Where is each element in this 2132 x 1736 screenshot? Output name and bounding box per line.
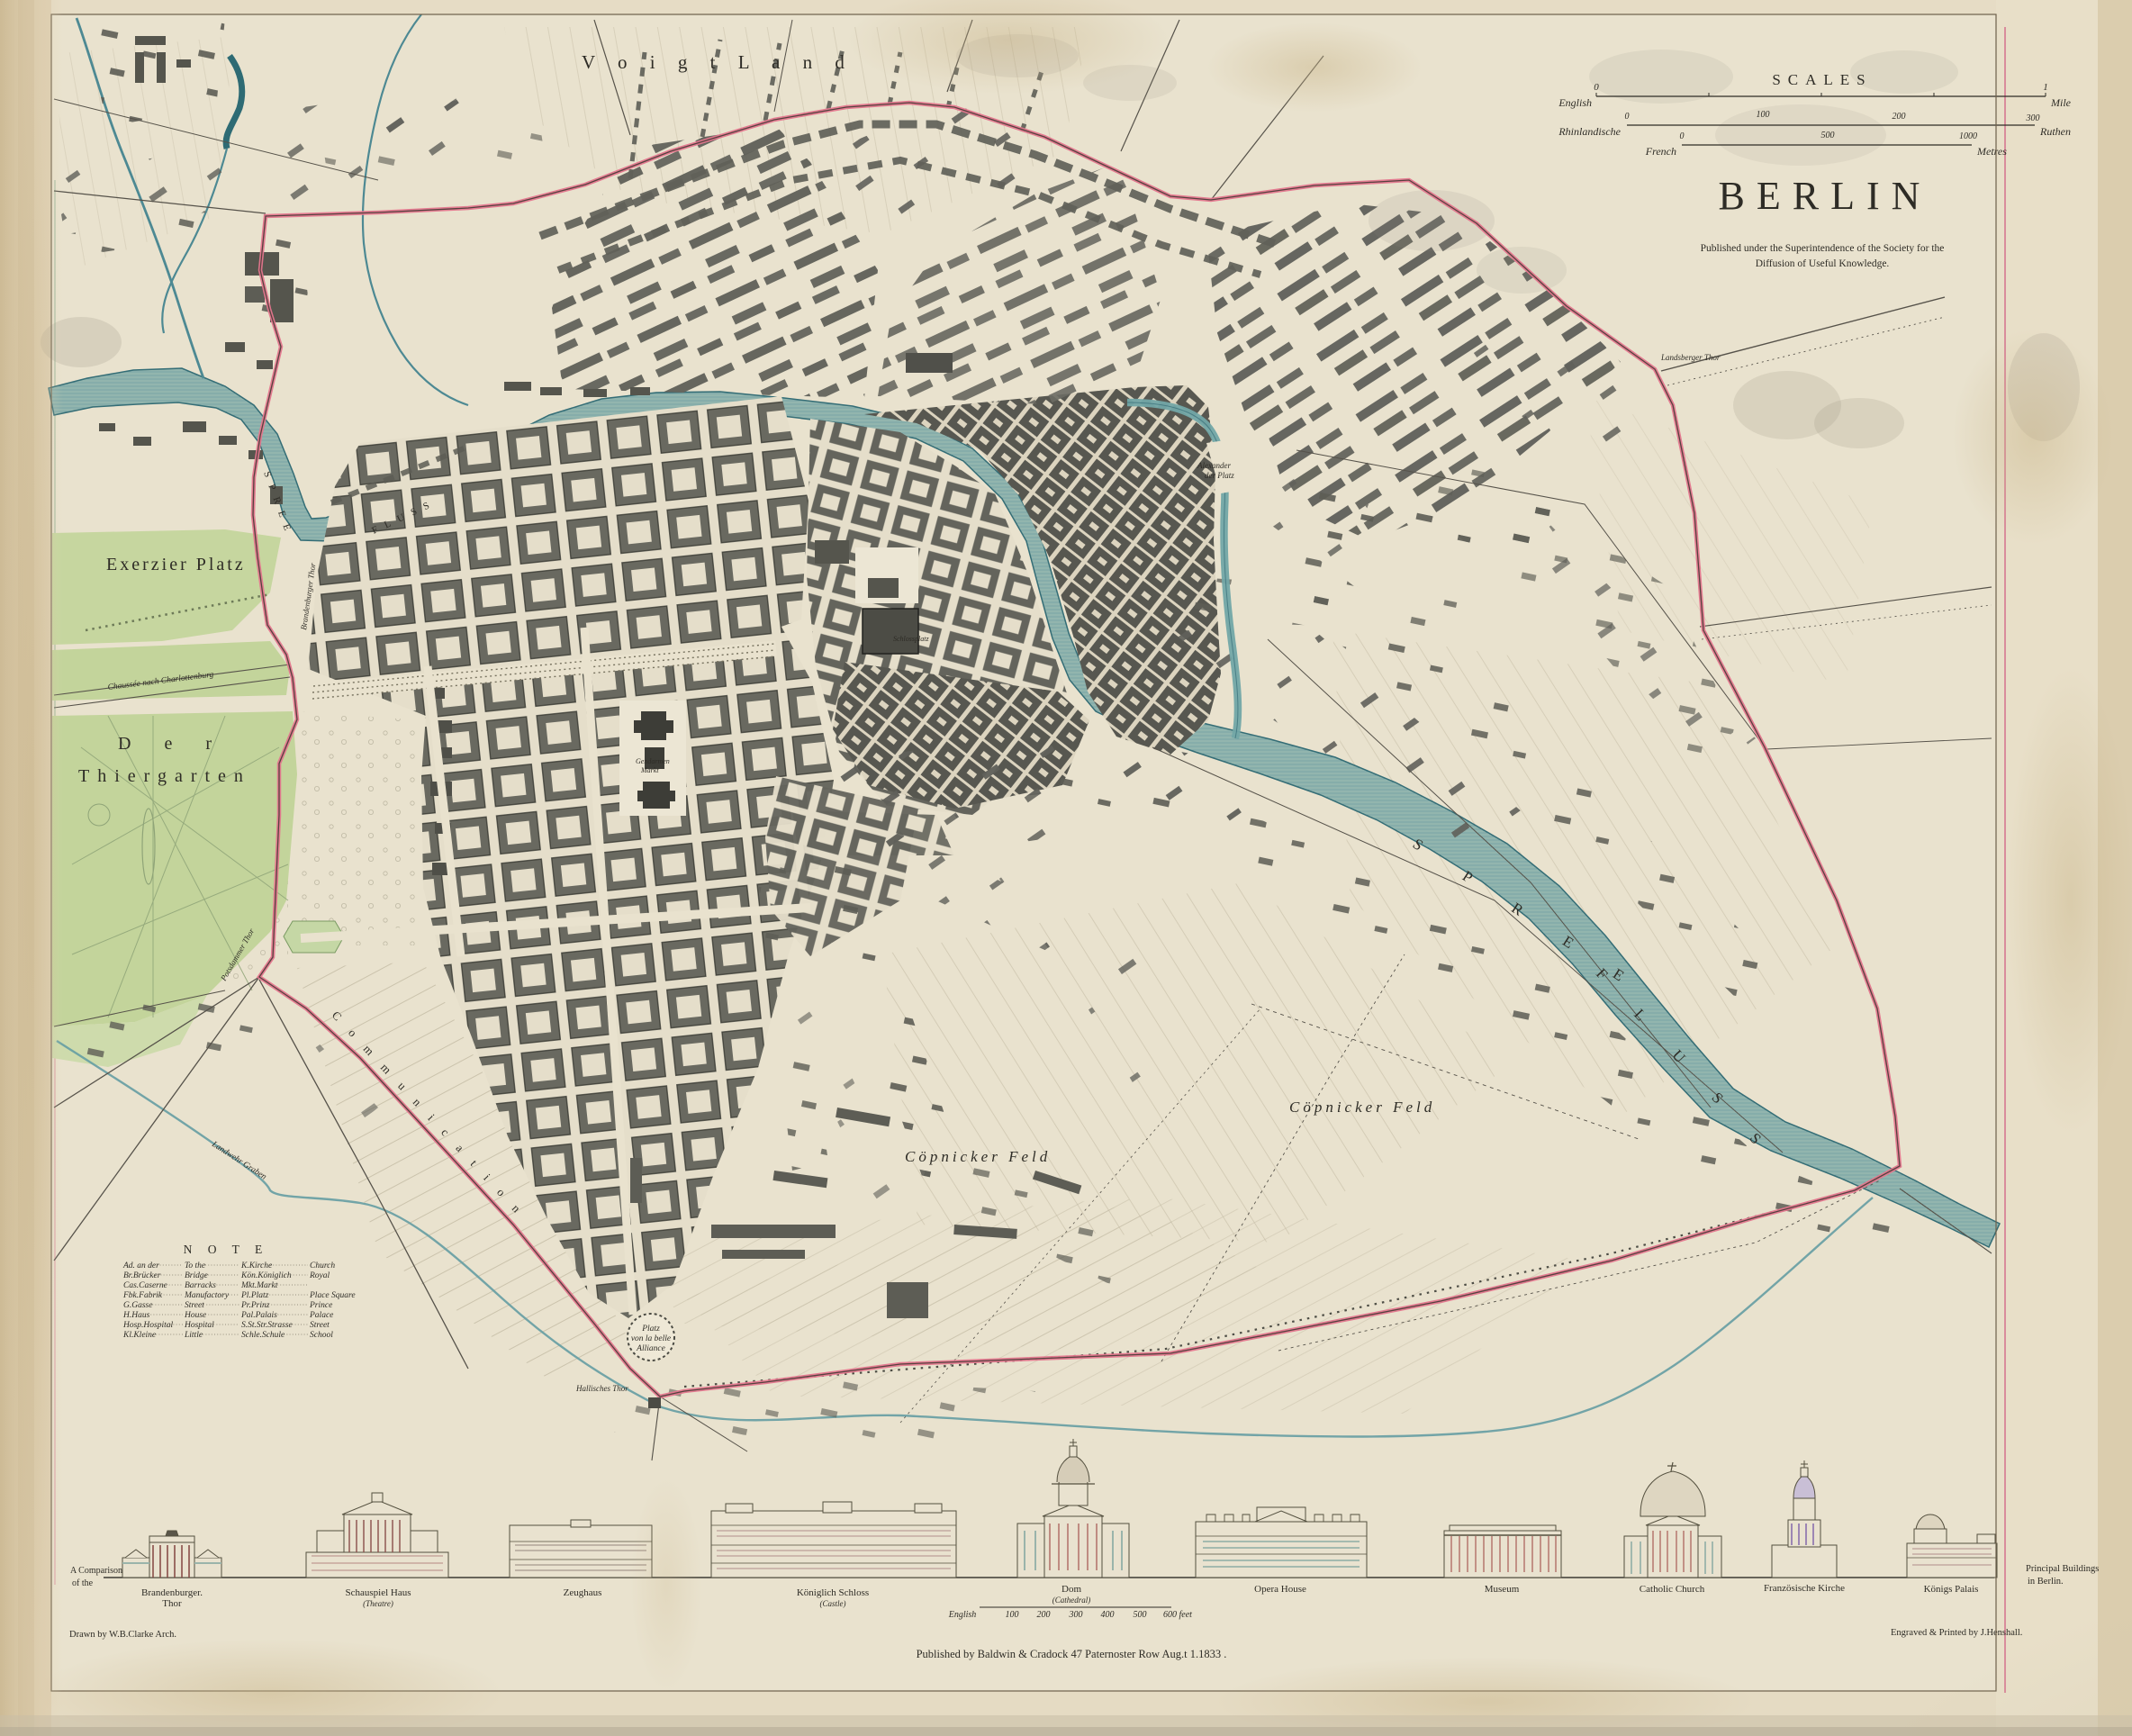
svg-text:SCALES: SCALES (1772, 71, 1872, 88)
svg-text:(Castle): (Castle) (820, 1599, 846, 1608)
svg-text:Prince: Prince (309, 1301, 332, 1310)
svg-text:Published by Baldwin & Cradock: Published by Baldwin & Cradock 47 Patern… (917, 1648, 1227, 1660)
svg-text:(Theatre): (Theatre) (363, 1599, 393, 1608)
svg-text:Mile: Mile (2050, 96, 2072, 109)
svg-text:D e r: D e r (118, 734, 226, 754)
svg-text:Catholic Church: Catholic Church (1640, 1584, 1705, 1595)
svg-text:House: House (184, 1311, 206, 1320)
svg-text:300: 300 (1069, 1610, 1083, 1620)
svg-text:Königlich Schloss: Königlich Schloss (797, 1587, 869, 1598)
svg-text:Bridge: Bridge (185, 1271, 208, 1280)
svg-text:0: 0 (1680, 131, 1685, 141)
svg-text:Pl.Platz: Pl.Platz (240, 1291, 269, 1300)
svg-text:300: 300 (2026, 113, 2040, 123)
svg-text:Br.Brücker: Br.Brücker (123, 1271, 161, 1280)
svg-text:V o i g t L a n d: V o i g t L a n d (582, 51, 854, 73)
svg-text:Hallisches Thor: Hallisches Thor (575, 1384, 628, 1393)
svg-text:Cöpnicker Feld: Cöpnicker Feld (905, 1148, 1051, 1165)
svg-text:Rhinlandische: Rhinlandische (1558, 125, 1621, 138)
svg-text:Church: Church (310, 1261, 335, 1270)
svg-text:H.Haus: H.Haus (122, 1311, 150, 1320)
svg-text:von la belle: von la belle (631, 1334, 671, 1343)
svg-text:English: English (948, 1610, 977, 1620)
svg-text:Schle.Schule: Schle.Schule (241, 1331, 285, 1340)
svg-text:Exerzier Platz: Exerzier Platz (106, 555, 246, 574)
svg-text:Dom: Dom (1061, 1584, 1081, 1595)
svg-text:Kön.Königlich: Kön.Königlich (240, 1271, 292, 1280)
svg-text:Barracks: Barracks (185, 1281, 216, 1290)
svg-text:Manufactory: Manufactory (184, 1290, 230, 1300)
svg-text:200: 200 (1893, 112, 1906, 122)
svg-text:Cöpnicker Feld: Cöpnicker Feld (1289, 1099, 1435, 1116)
svg-text:Thiergarten: Thiergarten (78, 766, 251, 786)
svg-text:Cas.Caserne: Cas.Caserne (123, 1281, 167, 1290)
svg-text:Zeughaus: Zeughaus (564, 1587, 602, 1598)
svg-text:Platz: Platz (641, 1325, 660, 1334)
svg-text:200: 200 (1037, 1610, 1051, 1620)
svg-text:600 feet: 600 feet (1163, 1610, 1192, 1620)
svg-text:Metres: Metres (1976, 145, 2007, 158)
svg-text:Diffusion of Useful Knowledge.: Diffusion of Useful Knowledge. (1756, 258, 1890, 269)
svg-text:Published under the Superinten: Published under the Superintendence of t… (1701, 243, 1945, 254)
svg-text:School: School (310, 1331, 333, 1340)
svg-text:G.Gasse: G.Gasse (123, 1301, 152, 1310)
svg-text:400: 400 (1101, 1610, 1115, 1620)
svg-text:0: 0 (1625, 112, 1630, 122)
svg-text:Place Square: Place Square (309, 1291, 356, 1300)
svg-text:N O T E: N O T E (184, 1243, 269, 1256)
svg-text:Markt: Markt (640, 766, 659, 774)
svg-text:500: 500 (1134, 1610, 1147, 1620)
svg-text:of the: of the (72, 1578, 94, 1588)
svg-text:1: 1 (2043, 82, 2048, 93)
svg-text:Hosp.Hospital: Hosp.Hospital (122, 1321, 174, 1330)
svg-text:Gendarmen: Gendarmen (636, 757, 670, 765)
svg-text:Thor: Thor (162, 1598, 182, 1609)
svg-text:Little: Little (184, 1331, 203, 1340)
svg-text:Palace: Palace (309, 1311, 333, 1320)
svg-text:Alexander: Alexander (1197, 461, 1231, 470)
svg-text:Fbk.Fabrik: Fbk.Fabrik (122, 1291, 163, 1300)
svg-text:500: 500 (1821, 131, 1835, 140)
svg-text:English: English (1558, 96, 1592, 109)
svg-text:Street: Street (185, 1301, 204, 1310)
svg-text:To the: To the (185, 1261, 205, 1270)
svg-text:A Comparison: A Comparison (70, 1566, 122, 1576)
svg-text:Mkt.Markt: Mkt.Markt (240, 1281, 278, 1290)
svg-text:(Cathedral): (Cathedral) (1052, 1596, 1091, 1605)
svg-text:Schauspiel Haus: Schauspiel Haus (345, 1587, 411, 1598)
svg-text:Street: Street (310, 1321, 330, 1330)
svg-text:Landsberger Thor: Landsberger Thor (1660, 353, 1721, 362)
svg-text:100: 100 (1757, 110, 1770, 120)
svg-text:Drawn by W.B.Clarke Arch.: Drawn by W.B.Clarke Arch. (69, 1630, 176, 1640)
svg-text:Royal: Royal (309, 1271, 330, 1280)
svg-text:Hospital: Hospital (184, 1321, 214, 1330)
svg-text:Opera House: Opera House (1254, 1584, 1306, 1595)
svg-text:Ruthen: Ruthen (2039, 125, 2071, 138)
svg-text:Museum: Museum (1485, 1584, 1520, 1595)
svg-text:Alliance: Alliance (636, 1344, 665, 1353)
svg-text:Pr.Prinz: Pr.Prinz (240, 1301, 270, 1310)
svg-text:BERLIN: BERLIN (1719, 174, 1932, 218)
svg-text:0: 0 (1594, 82, 1599, 93)
svg-text:K.Kirche: K.Kirche (240, 1261, 272, 1270)
svg-text:1000: 1000 (1959, 131, 1977, 141)
svg-text:100: 100 (1006, 1610, 1019, 1620)
svg-text:Ad. an der: Ad. an der (122, 1261, 159, 1270)
svg-text:der Platz: der Platz (1205, 471, 1234, 480)
svg-text:S.St.Str.Strasse: S.St.Str.Strasse (241, 1321, 293, 1330)
svg-text:Pal.Palais: Pal.Palais (240, 1311, 277, 1320)
svg-text:Brandenburger.: Brandenburger. (141, 1587, 203, 1598)
svg-text:Schlossplatz: Schlossplatz (893, 635, 929, 643)
svg-text:Kl.Kleine: Kl.Kleine (122, 1331, 156, 1340)
svg-text:French: French (1645, 145, 1676, 158)
